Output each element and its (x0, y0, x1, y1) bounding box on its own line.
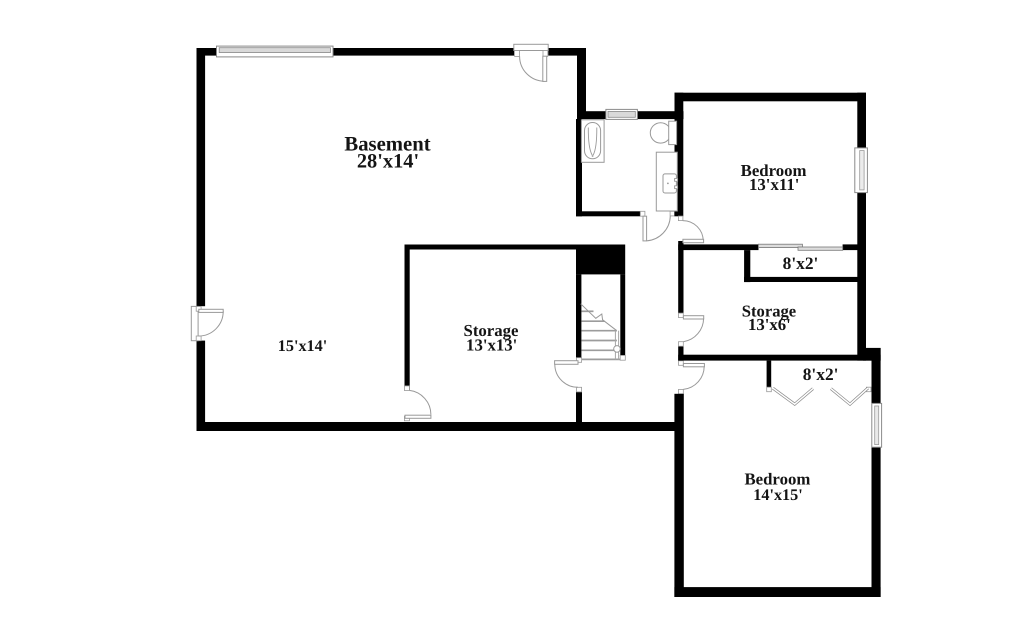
svg-text:13'x13': 13'x13' (466, 335, 517, 354)
svg-text:14'x15': 14'x15' (753, 486, 802, 504)
svg-text:8'x2': 8'x2' (803, 364, 839, 384)
svg-text:15'x14': 15'x14' (278, 337, 327, 355)
svg-text:13'x11': 13'x11' (749, 175, 799, 194)
svg-text:8'x2': 8'x2' (783, 253, 819, 273)
svg-text:13'x6': 13'x6' (748, 315, 791, 334)
svg-text:28'x14': 28'x14' (357, 151, 419, 173)
